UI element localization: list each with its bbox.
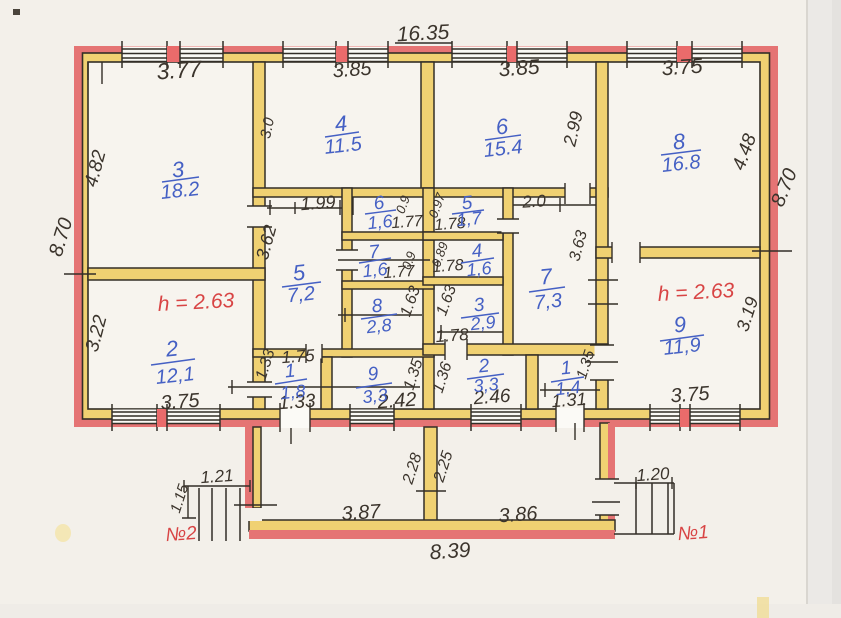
svg-text:1,6: 1,6 — [362, 259, 390, 282]
svg-text:1: 1 — [560, 358, 573, 380]
svg-text:7,2: 7,2 — [286, 283, 316, 308]
svg-text:18.2: 18.2 — [160, 178, 201, 204]
svg-text:3,3: 3,3 — [362, 385, 389, 408]
svg-text:3.77: 3.77 — [156, 55, 204, 84]
svg-text:1.99: 1.99 — [300, 192, 336, 214]
svg-text:1,8: 1,8 — [280, 381, 307, 404]
svg-text:1,7: 1,7 — [456, 208, 484, 231]
svg-text:1,4: 1,4 — [555, 377, 582, 400]
svg-text:h = 2.63: h = 2.63 — [157, 289, 235, 316]
svg-text:3.75: 3.75 — [160, 390, 201, 415]
svg-text:4: 4 — [334, 110, 349, 136]
svg-text:2.0: 2.0 — [521, 191, 547, 212]
svg-text:2,8: 2,8 — [365, 315, 393, 338]
svg-text:1.21: 1.21 — [200, 466, 234, 487]
svg-text:3.75: 3.75 — [670, 383, 711, 408]
svg-text:№1: №1 — [677, 522, 710, 545]
svg-text:1.20: 1.20 — [636, 464, 671, 485]
svg-text:1,6: 1,6 — [367, 211, 395, 234]
svg-text:12,1: 12,1 — [155, 363, 196, 389]
svg-text:1.78: 1.78 — [435, 325, 470, 346]
svg-text:11.5: 11.5 — [323, 133, 363, 159]
svg-text:3,3: 3,3 — [473, 374, 500, 397]
svg-text:7,3: 7,3 — [533, 290, 563, 315]
svg-text:h = 2.63: h = 2.63 — [657, 279, 735, 306]
svg-text:1: 1 — [284, 361, 297, 383]
svg-text:2,9: 2,9 — [469, 312, 497, 335]
svg-text:3.87: 3.87 — [341, 501, 382, 526]
svg-text:3.86: 3.86 — [498, 503, 539, 528]
svg-text:1,6: 1,6 — [466, 258, 494, 281]
svg-text:3.85: 3.85 — [332, 58, 373, 83]
svg-text:16.8: 16.8 — [661, 151, 702, 177]
svg-text:15.4: 15.4 — [483, 136, 524, 162]
svg-text:2: 2 — [164, 335, 180, 361]
svg-text:16.35: 16.35 — [396, 21, 450, 47]
svg-text:3.85: 3.85 — [498, 56, 541, 82]
svg-text:8.39: 8.39 — [429, 539, 472, 565]
svg-text:11,9: 11,9 — [662, 334, 702, 360]
svg-text:3.75: 3.75 — [661, 55, 704, 81]
svg-text:№2: №2 — [165, 523, 198, 546]
svg-text:1.77: 1.77 — [391, 213, 424, 232]
svg-text:9: 9 — [673, 311, 688, 337]
